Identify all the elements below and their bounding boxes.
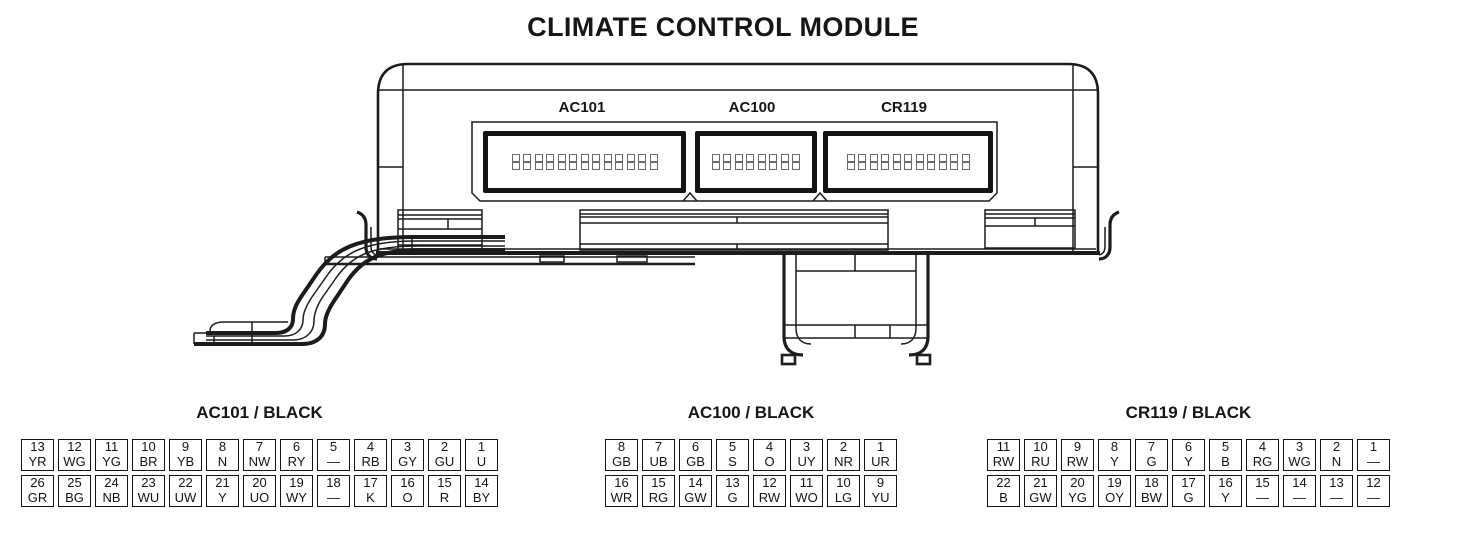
wire-color-code: UW <box>175 491 197 506</box>
connector-pin-row <box>512 154 658 162</box>
pin-number: 17 <box>1181 476 1195 491</box>
wire-color-code: UY <box>797 455 815 470</box>
pin-number: 6 <box>293 440 300 455</box>
pin-cell: 5— <box>317 439 350 471</box>
wire-color-code: — <box>1367 455 1380 470</box>
pin-number: 7 <box>1148 440 1155 455</box>
connector-pin <box>916 162 924 170</box>
pin-number: 3 <box>1296 440 1303 455</box>
pin-cell: 18— <box>317 475 350 507</box>
pin-number: 1 <box>1370 440 1377 455</box>
wire-color-code: RW <box>1067 455 1088 470</box>
pin-number: 19 <box>1107 476 1121 491</box>
pin-cell: 2GU <box>428 439 461 471</box>
pin-number: 4 <box>367 440 374 455</box>
wire-color-code: NR <box>834 455 853 470</box>
connector-pin <box>781 154 789 162</box>
wire-color-code: B <box>1221 455 1230 470</box>
wire-color-code: GU <box>435 455 455 470</box>
connector-pin <box>758 162 766 170</box>
pin-cell: 10RU <box>1024 439 1057 471</box>
connector-pin <box>712 162 720 170</box>
wire-color-code: YU <box>871 491 889 506</box>
connector-pin-row <box>847 154 970 162</box>
pin-number: 12 <box>762 476 776 491</box>
pin-cell: 13— <box>1320 475 1353 507</box>
pin-number: 7 <box>256 440 263 455</box>
connector-pin <box>592 154 600 162</box>
pin-number: 7 <box>655 440 662 455</box>
pin-cell: 5S <box>716 439 749 471</box>
pin-cell: 13YR <box>21 439 54 471</box>
pin-number: 20 <box>1070 476 1084 491</box>
connector-pin <box>950 154 958 162</box>
connector-pin <box>881 162 889 170</box>
pin-number: 24 <box>104 476 118 491</box>
wire-color-code: — <box>1367 491 1380 506</box>
connector-pin <box>916 154 924 162</box>
wire-color-code: N <box>218 455 227 470</box>
connector-pin <box>881 154 889 162</box>
pin-table-row: 8GB7UB6GB5S4O3UY2NR1UR <box>605 439 897 471</box>
pin-table-row: 16WR15RG14GW13G12RW11WO10LG9YU <box>605 475 897 507</box>
wire-color-code: YB <box>177 455 194 470</box>
wire-color-code: — <box>1293 491 1306 506</box>
pin-cell: 1— <box>1357 439 1390 471</box>
pin-number: 12 <box>1366 476 1380 491</box>
pin-cell: 16WR <box>605 475 638 507</box>
connector-pin <box>558 154 566 162</box>
connector-pin <box>904 162 912 170</box>
connector-pin <box>650 162 658 170</box>
wire-color-code: — <box>327 455 340 470</box>
connector-block-ac100 <box>695 131 817 193</box>
pin-number: 25 <box>67 476 81 491</box>
pin-number: 10 <box>1033 440 1047 455</box>
wire-color-code: Y <box>1184 455 1193 470</box>
connector-pin <box>792 154 800 162</box>
wire-color-code: B <box>999 491 1008 506</box>
pin-cell: 9YB <box>169 439 202 471</box>
wire-color-code: Y <box>218 491 227 506</box>
connector-pin <box>939 154 947 162</box>
wire-color-code: O <box>402 491 412 506</box>
connector-pin-row <box>512 162 658 170</box>
connector-pin <box>581 162 589 170</box>
wire-color-code: WG <box>1288 455 1310 470</box>
wire-color-code: — <box>1330 491 1343 506</box>
pin-number: 11 <box>800 476 814 491</box>
wire-color-code: BW <box>1141 491 1162 506</box>
pin-cell: 17K <box>354 475 387 507</box>
wire-color-code: G <box>1183 491 1193 506</box>
connector-pin <box>758 154 766 162</box>
pin-cell: 14BY <box>465 475 498 507</box>
pin-cell: 22B <box>987 475 1020 507</box>
connector-pin <box>746 154 754 162</box>
connector-pin-grid <box>512 154 658 170</box>
connector-pin-row <box>847 162 970 170</box>
pin-cell: 6RY <box>280 439 313 471</box>
wire-color-code: WO <box>795 491 817 506</box>
pin-number: 11 <box>105 440 119 455</box>
connector-pin <box>535 162 543 170</box>
pin-number: 16 <box>614 476 628 491</box>
pin-number: 2 <box>1333 440 1340 455</box>
pin-number: 13 <box>1329 476 1343 491</box>
pin-number: 14 <box>474 476 488 491</box>
pin-number: 6 <box>692 440 699 455</box>
pin-cell: 8GB <box>605 439 638 471</box>
wire-color-code: GR <box>28 491 48 506</box>
wire-color-code: RY <box>288 455 306 470</box>
pin-cell: 20YG <box>1061 475 1094 507</box>
wire-color-code: NW <box>249 455 271 470</box>
pin-cell: 6GB <box>679 439 712 471</box>
connector-pin <box>847 162 855 170</box>
pin-number: 15 <box>437 476 451 491</box>
pin-number: 2 <box>840 440 847 455</box>
pin-cell: 12RW <box>753 475 786 507</box>
wire-color-code: RG <box>649 491 669 506</box>
pin-table-ac101: AC101 / BLACK 13YR12WG11YG10BR9YB8N7NW6R… <box>21 403 498 511</box>
pin-number: 15 <box>651 476 665 491</box>
wire-color-code: — <box>1256 491 1269 506</box>
connector-pin <box>893 162 901 170</box>
pin-cell: 21Y <box>206 475 239 507</box>
pin-number: 3 <box>803 440 810 455</box>
connector-label-ac100: AC100 <box>729 99 776 116</box>
wire-color-code: LG <box>835 491 852 506</box>
wire-color-code: UO <box>250 491 270 506</box>
pin-number: 18 <box>1144 476 1158 491</box>
pin-number: 13 <box>725 476 739 491</box>
connector-label-ac101: AC101 <box>559 99 606 116</box>
pin-number: 8 <box>219 440 226 455</box>
wire-color-code: Y <box>1110 455 1119 470</box>
pin-number: 4 <box>766 440 773 455</box>
connector-pin <box>893 154 901 162</box>
wire-color-code: G <box>727 491 737 506</box>
pin-cell: 12— <box>1357 475 1390 507</box>
wire-color-code: RW <box>759 491 780 506</box>
pin-number: 5 <box>1222 440 1229 455</box>
connector-pin <box>746 162 754 170</box>
connector-pin <box>569 162 577 170</box>
connector-pin <box>735 154 743 162</box>
connector-pin <box>962 154 970 162</box>
pin-number: 5 <box>729 440 736 455</box>
wire-color-code: GW <box>684 491 706 506</box>
pin-table-rows: 13YR12WG11YG10BR9YB8N7NW6RY5—4RB3GY2GU1U… <box>21 439 498 507</box>
wire-color-code: U <box>477 455 486 470</box>
pin-number: 20 <box>252 476 266 491</box>
pin-cell: 15R <box>428 475 461 507</box>
connector-pin <box>615 154 623 162</box>
wire-color-code: K <box>366 491 375 506</box>
pin-cell: 15RG <box>642 475 675 507</box>
pin-cell: 21GW <box>1024 475 1057 507</box>
connector-pin <box>638 162 646 170</box>
wire-color-code: BR <box>139 455 157 470</box>
pin-cell: 11YG <box>95 439 128 471</box>
pin-number: 9 <box>182 440 189 455</box>
pin-cell: 7NW <box>243 439 276 471</box>
connector-pin <box>870 154 878 162</box>
pin-cell: 25BG <box>58 475 91 507</box>
wire-color-code: O <box>764 455 774 470</box>
pin-table-rows: 11RW10RU9RW8Y7G6Y5B4RG3WG2N1—22B21GW20YG… <box>987 439 1390 507</box>
wire-color-code: OY <box>1105 491 1124 506</box>
wire-color-code: WG <box>63 455 85 470</box>
pin-cell: 11WO <box>790 475 823 507</box>
wire-color-code: RG <box>1253 455 1273 470</box>
pin-cell: 4O <box>753 439 786 471</box>
pin-table-row: 22B21GW20YG19OY18BW17G16Y15—14—13—12— <box>987 475 1390 507</box>
pin-table-rows: 8GB7UB6GB5S4O3UY2NR1UR16WR15RG14GW13G12R… <box>605 439 897 507</box>
pin-number: 5 <box>330 440 337 455</box>
wire-color-code: RB <box>361 455 379 470</box>
connector-block-cr119 <box>823 131 993 193</box>
connector-pin <box>535 154 543 162</box>
connector-pin <box>927 162 935 170</box>
connector-pin <box>939 162 947 170</box>
pin-cell: 1U <box>465 439 498 471</box>
wire-color-code: WU <box>138 491 160 506</box>
pin-cell: 14— <box>1283 475 1316 507</box>
pin-table-title: AC100 / BLACK <box>605 403 897 423</box>
pin-cell: 6Y <box>1172 439 1205 471</box>
pin-number: 19 <box>289 476 303 491</box>
pin-cell: 9RW <box>1061 439 1094 471</box>
wire-color-code: GB <box>612 455 631 470</box>
wire-color-code: YR <box>28 455 46 470</box>
pin-cell: 16Y <box>1209 475 1242 507</box>
pin-number: 21 <box>1033 476 1047 491</box>
pin-cell: 2N <box>1320 439 1353 471</box>
pin-cell: 1UR <box>864 439 897 471</box>
pin-cell: 10BR <box>132 439 165 471</box>
wire-color-code: RU <box>1031 455 1050 470</box>
connector-pin <box>927 154 935 162</box>
wire-color-code: Y <box>1221 491 1230 506</box>
connector-pin <box>858 162 866 170</box>
pin-number: 12 <box>67 440 81 455</box>
wire-color-code: YG <box>1068 491 1087 506</box>
pin-cell: 19OY <box>1098 475 1131 507</box>
pin-number: 23 <box>141 476 155 491</box>
pin-number: 14 <box>1292 476 1306 491</box>
pin-number: 3 <box>404 440 411 455</box>
pin-cell: 13G <box>716 475 749 507</box>
connector-pin <box>792 162 800 170</box>
connector-pin-row <box>712 154 801 162</box>
pin-number: 16 <box>400 476 414 491</box>
pin-number: 1 <box>877 440 884 455</box>
pin-number: 17 <box>363 476 377 491</box>
connector-pin <box>769 162 777 170</box>
connector-pin <box>604 154 612 162</box>
wire-color-code: RW <box>993 455 1014 470</box>
wire-color-code: BY <box>473 491 490 506</box>
connector-pin <box>627 154 635 162</box>
connector-pin <box>723 162 731 170</box>
connector-pin <box>735 162 743 170</box>
pin-cell: 4RB <box>354 439 387 471</box>
pin-table-cr119: CR119 / BLACK 11RW10RU9RW8Y7G6Y5B4RG3WG2… <box>987 403 1390 511</box>
wire-color-code: GB <box>686 455 705 470</box>
connector-pin <box>962 162 970 170</box>
pin-number: 13 <box>30 440 44 455</box>
pin-cell: 4RG <box>1246 439 1279 471</box>
wire-color-code: R <box>440 491 449 506</box>
connector-pin <box>604 162 612 170</box>
pin-number: 16 <box>1218 476 1232 491</box>
pin-cell: 3UY <box>790 439 823 471</box>
wire-color-code: UR <box>871 455 890 470</box>
pin-table-row: 13YR12WG11YG10BR9YB8N7NW6RY5—4RB3GY2GU1U <box>21 439 498 471</box>
pin-cell: 8N <box>206 439 239 471</box>
pin-table-row: 26GR25BG24NB23WU22UW21Y20UO19WY18—17K16O… <box>21 475 498 507</box>
wiring-diagram-page: CLIMATE CONTROL MODULE <box>0 0 1479 553</box>
pin-number: 15 <box>1255 476 1269 491</box>
pin-number: 21 <box>215 476 229 491</box>
connector-pin <box>950 162 958 170</box>
pin-table-title: AC101 / BLACK <box>21 403 498 423</box>
pin-number: 11 <box>997 440 1011 455</box>
pin-table-ac100: AC100 / BLACK 8GB7UB6GB5S4O3UY2NR1UR16WR… <box>605 403 897 511</box>
wire-color-code: WR <box>611 491 633 506</box>
connector-pin <box>615 162 623 170</box>
connector-pin <box>627 162 635 170</box>
connector-pin <box>512 154 520 162</box>
connector-pin <box>904 154 912 162</box>
pin-table-title: CR119 / BLACK <box>987 403 1390 423</box>
connector-pin <box>523 162 531 170</box>
pin-number: 8 <box>618 440 625 455</box>
connector-pin <box>592 162 600 170</box>
connector-pin <box>523 154 531 162</box>
pin-cell: 23WU <box>132 475 165 507</box>
pin-number: 18 <box>326 476 340 491</box>
connector-pin <box>723 154 731 162</box>
pin-cell: 12WG <box>58 439 91 471</box>
wire-color-code: GW <box>1029 491 1051 506</box>
pin-number: 26 <box>30 476 44 491</box>
connector-pin <box>569 154 577 162</box>
pin-cell: 3WG <box>1283 439 1316 471</box>
connector-pin <box>558 162 566 170</box>
connector-block-ac101 <box>483 131 686 193</box>
connector-pin <box>546 154 554 162</box>
pin-number: 22 <box>996 476 1010 491</box>
connector-pin-row <box>712 162 801 170</box>
wire-color-code: WY <box>286 491 307 506</box>
connector-pin <box>858 154 866 162</box>
pin-cell: 3GY <box>391 439 424 471</box>
connector-pin-grid <box>712 154 801 170</box>
connector-pin <box>870 162 878 170</box>
pin-cell: 19WY <box>280 475 313 507</box>
wire-color-code: S <box>728 455 737 470</box>
pin-number: 9 <box>877 476 884 491</box>
pin-cell: 10LG <box>827 475 860 507</box>
pin-cell: 22UW <box>169 475 202 507</box>
connector-pin <box>847 154 855 162</box>
wire-color-code: GY <box>398 455 417 470</box>
pin-number: 1 <box>478 440 485 455</box>
pin-number: 22 <box>178 476 192 491</box>
pin-cell: 15— <box>1246 475 1279 507</box>
wire-color-code: N <box>1332 455 1341 470</box>
pin-cell: 16O <box>391 475 424 507</box>
pin-cell: 24NB <box>95 475 128 507</box>
pin-number: 8 <box>1111 440 1118 455</box>
pin-cell: 17G <box>1172 475 1205 507</box>
connector-pin <box>581 154 589 162</box>
pin-number: 6 <box>1185 440 1192 455</box>
pin-cell: 18BW <box>1135 475 1168 507</box>
connector-pin <box>512 162 520 170</box>
wire-color-code: NB <box>102 491 120 506</box>
pin-number: 10 <box>836 476 850 491</box>
pin-cell: 8Y <box>1098 439 1131 471</box>
pin-number: 10 <box>141 440 155 455</box>
pin-cell: 9YU <box>864 475 897 507</box>
pin-cell: 5B <box>1209 439 1242 471</box>
wire-color-code: — <box>327 491 340 506</box>
pin-cell: 11RW <box>987 439 1020 471</box>
pin-cell: 7UB <box>642 439 675 471</box>
pin-number: 4 <box>1259 440 1266 455</box>
pin-cell: 20UO <box>243 475 276 507</box>
wire-color-code: YG <box>102 455 121 470</box>
connector-pin <box>769 154 777 162</box>
pin-number: 2 <box>441 440 448 455</box>
connector-pin <box>781 162 789 170</box>
pin-number: 9 <box>1074 440 1081 455</box>
connector-pin <box>650 154 658 162</box>
connector-pin <box>546 162 554 170</box>
pin-cell: 7G <box>1135 439 1168 471</box>
connector-label-cr119: CR119 <box>881 99 927 116</box>
connector-pin-grid <box>847 154 970 170</box>
connector-pin <box>638 154 646 162</box>
pin-cell: 14GW <box>679 475 712 507</box>
wire-color-code: UB <box>649 455 667 470</box>
wire-color-code: BG <box>65 491 84 506</box>
pin-cell: 2NR <box>827 439 860 471</box>
connector-pin <box>712 154 720 162</box>
pin-cell: 26GR <box>21 475 54 507</box>
pin-number: 14 <box>688 476 702 491</box>
pin-table-row: 11RW10RU9RW8Y7G6Y5B4RG3WG2N1— <box>987 439 1390 471</box>
wire-color-code: G <box>1146 455 1156 470</box>
